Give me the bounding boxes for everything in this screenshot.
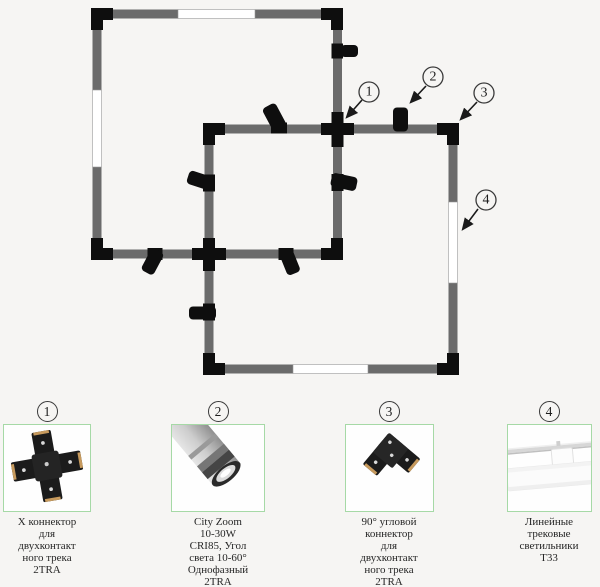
product-number: 2: [215, 404, 222, 420]
light-segment-left: [93, 90, 102, 167]
x-connector-image: [4, 425, 90, 511]
product-number-badge: 4: [539, 401, 560, 422]
product-caption: 90° угловой коннектор для двухконтакт но…: [360, 516, 417, 587]
corner-connector-marker: [91, 8, 113, 30]
product-photo-corner-connector: [345, 424, 434, 512]
track-spotlight: [189, 304, 216, 321]
callout-4: 4: [463, 190, 496, 229]
corner-connector-image: [346, 425, 433, 511]
track-spotlight: [332, 44, 359, 59]
product-item-4: 4 Линейные трековые светильники Т33: [494, 400, 600, 564]
callout-3-label: 3: [481, 86, 488, 101]
corner-connectors: [91, 8, 459, 375]
light-segment-top: [178, 10, 255, 19]
product-caption: Х коннектор для двухконтакт ного трека 2…: [18, 516, 77, 576]
product-number-badge: 2: [208, 401, 229, 422]
product-item-2: 2: [162, 400, 274, 587]
callout-4-label: 4: [483, 193, 490, 208]
product-photo-x-connector: [3, 424, 91, 512]
product-infographic: 1 2 3 4 1: [0, 0, 600, 587]
corner-connector-marker: [321, 8, 343, 30]
track-layout-diagram: 1 2 3 4: [0, 0, 600, 400]
product-caption: City Zoom 10-30W CRI85, Угол света 10-60…: [188, 516, 248, 587]
callout-1: 1: [347, 82, 379, 117]
product-number: 3: [386, 404, 393, 420]
callout-3: 3: [461, 83, 494, 119]
product-photo-linear-light: [507, 424, 592, 512]
corner-connector-marker: [437, 123, 459, 145]
x-connector-marker: [321, 112, 354, 147]
callout-2-label: 2: [430, 70, 437, 85]
x-connector-marker: [192, 238, 226, 271]
corner-connector-marker: [321, 238, 343, 260]
light-segment-bottom: [293, 365, 368, 374]
product-number: 4: [546, 404, 553, 420]
product-photo-city-zoom: [171, 424, 265, 512]
product-caption: Линейные трековые светильники Т33: [519, 516, 578, 564]
corner-connector-marker: [203, 353, 225, 375]
light-segment-right: [449, 202, 458, 283]
corner-connector-marker: [437, 353, 459, 375]
track-spotlight: [393, 108, 408, 132]
linear-light-segments: [93, 10, 458, 374]
product-number-badge: 3: [379, 401, 400, 422]
callout-1-label: 1: [366, 85, 373, 100]
product-item-3: 3 90° угловой коннектор для двухконтакт …: [334, 400, 444, 587]
corner-connector-marker: [91, 238, 113, 260]
corner-connector-marker: [203, 123, 225, 145]
city-zoom-spotlight-image: [172, 425, 264, 511]
product-number: 1: [44, 404, 51, 420]
product-item-1: 1 Х коннектор для: [1, 400, 93, 576]
linear-track-light-image: [508, 425, 591, 511]
track-spotlight: [330, 172, 358, 191]
product-number-badge: 1: [37, 401, 58, 422]
callout-2: 2: [411, 67, 443, 102]
